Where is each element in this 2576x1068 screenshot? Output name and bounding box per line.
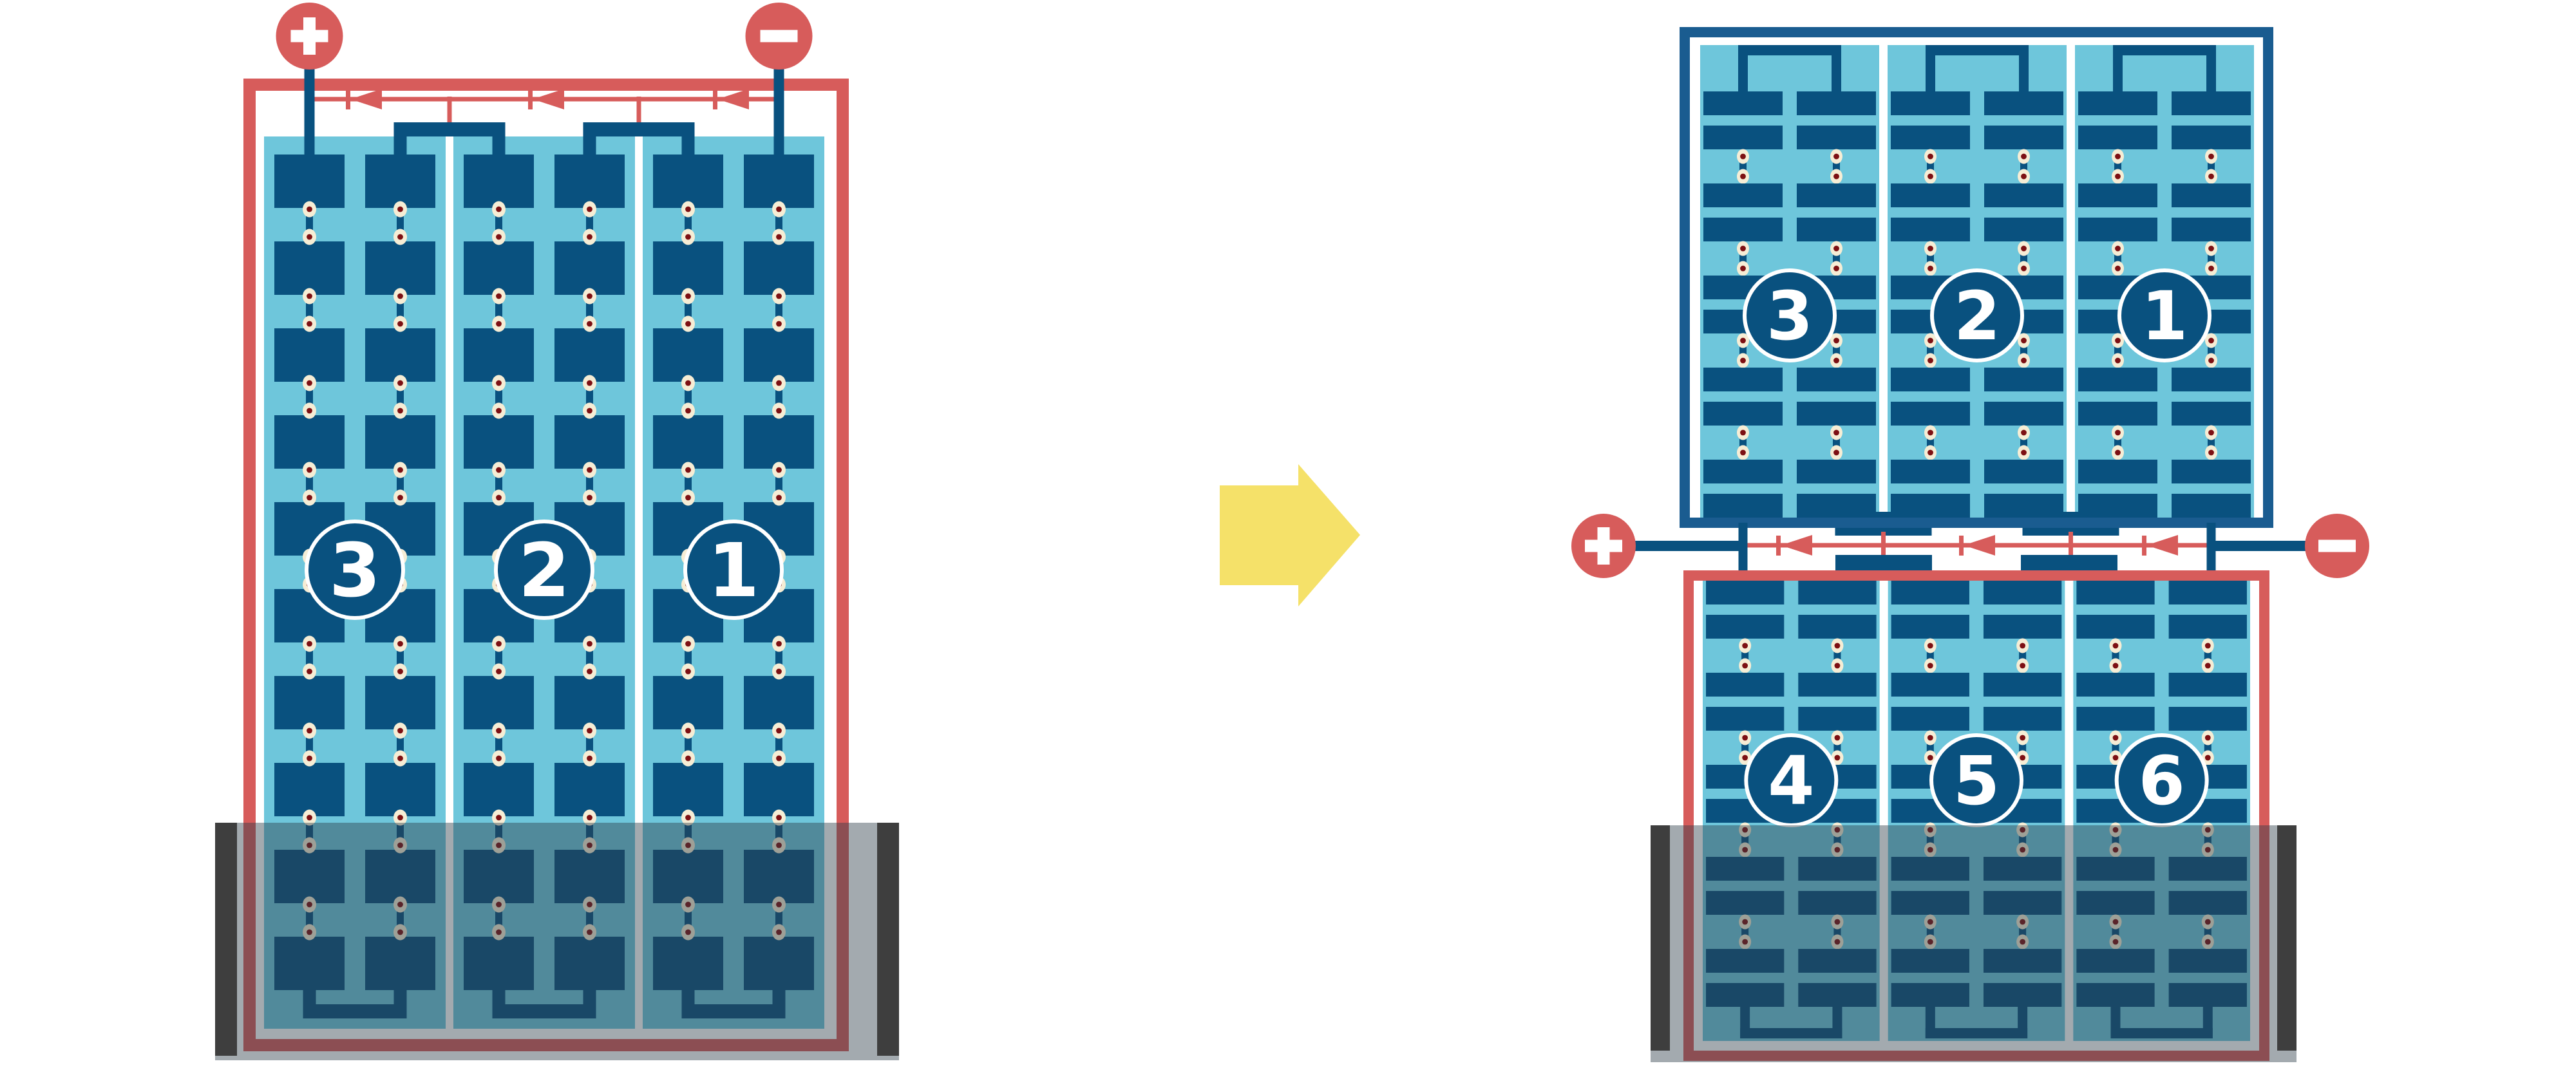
solder-dot-core [776, 207, 782, 212]
solar-cell [1984, 91, 2063, 115]
solar-cell [2172, 494, 2251, 518]
solder-dot-core [685, 467, 691, 473]
string-number-label: 4 [1768, 742, 1814, 820]
solder-dot-core [685, 728, 691, 734]
string-number-badge: 3 [1745, 270, 1835, 361]
solder-dot-core [496, 495, 502, 501]
solar-cell [1706, 707, 1784, 731]
solar-cell [744, 155, 814, 208]
bridge-leg [493, 122, 506, 155]
solder-dot-core [2115, 358, 2121, 364]
solder-dot-core [1833, 430, 1839, 436]
solder-dot-core [397, 207, 403, 212]
u-leg [2206, 55, 2216, 91]
string-number-badge: 1 [685, 521, 782, 618]
solar-cell [653, 676, 723, 729]
solar-cell [2172, 368, 2251, 391]
string-number-label: 2 [1954, 277, 2000, 355]
solder-dot-core [2205, 735, 2211, 741]
solder-dot-core [2205, 663, 2211, 669]
shade-overlay [215, 823, 899, 1060]
solder-dot-core [1927, 358, 1933, 364]
solder-dot-core [1740, 430, 1746, 436]
solder-dot-core [776, 756, 782, 762]
solder-dot-core [397, 669, 403, 675]
solar-cell [1797, 218, 1876, 241]
solder-dot-core [685, 495, 691, 501]
solder-dot-core [307, 408, 312, 414]
solar-cell [274, 155, 345, 208]
solar-cell [365, 241, 435, 295]
solder-dot-core [2115, 246, 2121, 252]
solar-cell [365, 415, 435, 469]
solder-dot-core [1927, 246, 1933, 252]
solder-dot-core [2021, 450, 2027, 456]
bridge-leg [583, 122, 596, 155]
solar-cell [1984, 581, 2061, 604]
bypass-diode-icon [1959, 535, 1995, 556]
solder-dot-core [397, 294, 403, 299]
solder-dot-core [2020, 735, 2025, 741]
solar-cell [1798, 581, 1876, 604]
solder-dot-core [2113, 643, 2119, 649]
solar-cell [1984, 402, 2063, 426]
shade-edge-bar [215, 823, 237, 1056]
bridge-bar [394, 122, 506, 136]
solar-cell [554, 676, 625, 729]
solar-cell [1891, 460, 1970, 483]
solar-cell [2169, 581, 2247, 604]
diode-cathode-bar [1959, 536, 1964, 556]
solar-cell [1984, 368, 2063, 391]
solar-cell [365, 155, 435, 208]
solder-dot-core [397, 756, 403, 762]
solar-cell [365, 763, 435, 816]
solar-cell [1797, 368, 1876, 391]
solar-cell [464, 155, 534, 208]
solar-cell [2076, 673, 2154, 697]
solar-cell [1891, 126, 1970, 149]
solder-dot-core [1742, 643, 1748, 649]
string-number-badge: 2 [496, 521, 592, 618]
solar-cell [1984, 673, 2061, 697]
solder-dot-core [587, 380, 592, 386]
diode-triangle [1964, 535, 1995, 556]
u-leg [1832, 55, 1841, 91]
solar-cell [2172, 126, 2251, 149]
solar-cell [1703, 183, 1783, 207]
diode-cathode-bar [2142, 536, 2146, 556]
string-separator [1879, 45, 1888, 518]
positive-terminal-icon [276, 3, 343, 70]
solder-dot-core [587, 728, 592, 734]
string-number-badge: 1 [2119, 270, 2210, 361]
solder-dot-core [776, 467, 782, 473]
solar-cell [653, 763, 723, 816]
string-number-label: 5 [1953, 742, 2000, 820]
bypass-diode-icon [528, 89, 564, 109]
solder-dot-core [1833, 154, 1839, 160]
solar-cell [554, 328, 625, 382]
solder-dot-core [1835, 735, 1841, 741]
solar-cell [1891, 673, 1969, 697]
solar-cell [464, 328, 534, 382]
solder-dot-core [307, 495, 312, 501]
diode-bus [310, 89, 779, 136]
solder-dot-core [2020, 643, 2025, 649]
solder-dot-core [1740, 246, 1746, 252]
solar-cell [2078, 368, 2157, 391]
solar-cell [1703, 368, 1783, 391]
solder-dot-core [1927, 663, 1933, 669]
junction-tick [2069, 532, 2073, 559]
solar-cell [1984, 615, 2061, 639]
u-bar [1926, 45, 2029, 55]
diode-cathode-bar [1776, 536, 1781, 556]
solder-dot-core [1835, 755, 1841, 761]
solder-dot-core [397, 641, 403, 647]
solder-dot-core [587, 207, 592, 212]
solder-dot-core [1927, 174, 1933, 180]
solar-cell [1891, 581, 1969, 604]
solar-cell [1703, 126, 1783, 149]
solder-dot-core [496, 815, 502, 821]
solder-dot-core [685, 294, 691, 299]
diode-triangle [717, 89, 749, 109]
string-number-label: 1 [2141, 277, 2188, 355]
solar-cell [1798, 673, 1876, 697]
solder-dot-core [397, 408, 403, 414]
solder-dot-core [307, 380, 312, 386]
solder-dot-core [2208, 246, 2214, 252]
solar-cell [2172, 218, 2251, 241]
solder-dot-core [2021, 246, 2027, 252]
solder-dot-core [307, 294, 312, 299]
solar-cell [1984, 218, 2063, 241]
negative-terminal-icon [2305, 514, 2369, 578]
right-stack: 321456 [1571, 32, 2369, 1062]
diode-bus [1747, 532, 2207, 559]
solar-cell [1891, 218, 1970, 241]
solder-dot-core [587, 467, 592, 473]
solar-cell [2172, 91, 2251, 115]
solder-dot-core [776, 321, 782, 327]
solar-cell [554, 155, 625, 208]
solar-cell [1984, 707, 2061, 731]
solder-dot-core [1740, 154, 1746, 160]
solar-cell [1798, 707, 1876, 731]
solder-dot-core [397, 728, 403, 734]
u-leg [1926, 55, 1935, 91]
solar-cell [744, 241, 814, 295]
solder-dot-core [2208, 358, 2214, 364]
solar-cell [1703, 460, 1783, 483]
solar-cell [1703, 91, 1783, 115]
solder-dot-core [2205, 643, 2211, 649]
solder-dot-core [496, 641, 502, 647]
terminal-wire [1632, 541, 1743, 551]
solder-dot-core [776, 234, 782, 240]
solder-dot-core [1742, 755, 1748, 761]
solar-cell [1706, 673, 1784, 697]
solder-dot-core [1927, 450, 1933, 456]
solder-dot-core [2208, 266, 2214, 272]
solder-dot-core [1740, 450, 1746, 456]
solder-dot-core [2113, 663, 2119, 669]
solder-dot-core [2020, 663, 2025, 669]
solder-dot-core [1927, 338, 1933, 344]
diode-triangle [1781, 535, 1812, 556]
solder-dot-core [685, 641, 691, 647]
solder-dot-core [587, 815, 592, 821]
solder-dot-core [397, 815, 403, 821]
solder-dot-core [776, 728, 782, 734]
solar-cell [1703, 402, 1783, 426]
solder-dot-core [776, 408, 782, 414]
solar-cell [1984, 183, 2063, 207]
solar-cell [744, 763, 814, 816]
solder-dot-core [307, 207, 312, 212]
solar-cell [653, 155, 723, 208]
solder-dot-core [496, 294, 502, 299]
solder-dot-core [397, 495, 403, 501]
solder-dot-core [397, 467, 403, 473]
solar-cell [464, 415, 534, 469]
solar-cell [2078, 183, 2157, 207]
solar-cell [554, 241, 625, 295]
solder-dot-core [1833, 338, 1839, 344]
solar-cell [1797, 402, 1876, 426]
transform-arrow-icon [1220, 464, 1360, 606]
solder-dot-core [685, 321, 691, 327]
solder-dot-core [2208, 338, 2214, 344]
solder-dot-core [1927, 266, 1933, 272]
solder-dot-core [1740, 174, 1746, 180]
solder-dot-core [1742, 735, 1748, 741]
solder-dot-core [496, 728, 502, 734]
solar-cell [1797, 183, 1876, 207]
solder-dot-core [1740, 358, 1746, 364]
string-number-label: 1 [708, 528, 759, 614]
terminal-wire [774, 63, 784, 155]
solder-dot-core [307, 728, 312, 734]
solder-dot-core [496, 321, 502, 327]
solar-cell [2172, 183, 2251, 207]
plus-glyph-v [1598, 527, 1610, 565]
solder-dot-core [2115, 430, 2121, 436]
solder-dot-core [776, 669, 782, 675]
solder-dot-core [2115, 266, 2121, 272]
solar-bypass-diode-diagram: 321321456 [0, 0, 2576, 1068]
solder-dot-core [587, 408, 592, 414]
solar-cell [744, 415, 814, 469]
solar-cell [2076, 707, 2154, 731]
solder-dot-core [776, 294, 782, 299]
solder-dot-core [307, 815, 312, 821]
string-number-label: 2 [518, 528, 570, 614]
solar-cell [1703, 218, 1783, 241]
solder-dot-core [397, 321, 403, 327]
solder-dot-core [1833, 450, 1839, 456]
solder-dot-core [397, 380, 403, 386]
solar-cell [274, 415, 345, 469]
diode-cathode-bar [713, 89, 717, 109]
solar-cell [1798, 615, 1876, 639]
diode-triangle [2146, 535, 2178, 556]
solar-cell [1703, 494, 1783, 518]
solder-dot-core [1740, 338, 1746, 344]
solar-cell [365, 328, 435, 382]
solder-dot-core [685, 815, 691, 821]
minus-glyph [2318, 540, 2356, 552]
solder-dot-core [496, 207, 502, 212]
solder-dot-core [307, 641, 312, 647]
bypass-diode-icon [1776, 535, 1812, 556]
solder-dot-core [685, 207, 691, 212]
shade-region [1651, 825, 2297, 1062]
solder-dot-core [1927, 643, 1933, 649]
shade-edge-bar [1651, 825, 1670, 1051]
solar-cell [554, 763, 625, 816]
solder-dot-core [2021, 430, 2027, 436]
solder-dot-core [1927, 430, 1933, 436]
diagram-canvas: 321321456 [0, 0, 2576, 1068]
solar-cell [274, 763, 345, 816]
string-number-label: 3 [1766, 277, 1813, 355]
solder-dot-core [2205, 755, 2211, 761]
solder-dot-core [2208, 450, 2214, 456]
solder-dot-core [685, 756, 691, 762]
solder-dot-core [587, 234, 592, 240]
bridge-leg [682, 122, 695, 155]
solder-dot-core [776, 815, 782, 821]
solder-dot-core [496, 669, 502, 675]
solder-dot-core [1835, 643, 1841, 649]
solar-cell [2169, 707, 2247, 731]
solar-cell [744, 676, 814, 729]
solder-dot-core [2208, 430, 2214, 436]
solder-dot-core [776, 641, 782, 647]
solder-dot-core [587, 669, 592, 675]
solar-cell [2169, 673, 2247, 697]
solder-dot-core [587, 321, 592, 327]
solder-dot-core [587, 294, 592, 299]
solar-cell [464, 763, 534, 816]
solder-dot-core [496, 408, 502, 414]
solder-dot-core [2115, 338, 2121, 344]
solder-dot-core [2115, 154, 2121, 160]
solar-cell [274, 676, 345, 729]
solar-cell [464, 241, 534, 295]
string-number-label: 6 [2138, 742, 2184, 820]
solar-cell [1891, 402, 1970, 426]
diode-triangle [533, 89, 564, 109]
solar-cell [464, 676, 534, 729]
transform-arrow [1220, 464, 1360, 606]
left-module: 321 [215, 3, 899, 1060]
minus-glyph [761, 30, 798, 42]
solar-cell [2172, 402, 2251, 426]
solar-cell [2076, 615, 2154, 639]
positive-terminal-icon [1571, 514, 1636, 578]
diode-cathode-bar [528, 89, 533, 109]
solar-cell [2078, 218, 2157, 241]
u-bar [1738, 45, 1841, 55]
solder-dot-core [1833, 174, 1839, 180]
string-number-badge: 4 [1746, 735, 1836, 825]
solder-dot-core [307, 234, 312, 240]
u-leg [2019, 55, 2029, 91]
solder-dot-core [2115, 174, 2121, 180]
string-number-badge: 3 [307, 521, 403, 618]
solder-dot-core [397, 234, 403, 240]
solder-dot-core [2113, 735, 2119, 741]
string-number-badge: 6 [2117, 735, 2207, 825]
solder-dot-core [496, 234, 502, 240]
solder-dot-core [1833, 246, 1839, 252]
bypass-diode-icon [713, 89, 749, 109]
solar-cell [274, 241, 345, 295]
solder-dot-core [307, 321, 312, 327]
solar-cell [1706, 581, 1784, 604]
solder-dot-core [1927, 154, 1933, 160]
solder-dot-core [307, 467, 312, 473]
solder-dot-core [496, 467, 502, 473]
solder-dot-core [2021, 338, 2027, 344]
solder-dot-core [685, 669, 691, 675]
terminal-wire [2211, 541, 2309, 551]
solder-dot-core [1927, 755, 1933, 761]
string-separator [2067, 45, 2075, 518]
solar-cell [1891, 368, 1970, 391]
solder-dot-core [1833, 358, 1839, 364]
u-leg [1738, 55, 1748, 91]
solder-dot-core [2021, 358, 2027, 364]
solar-cell [1891, 91, 1970, 115]
solder-dot-core [776, 495, 782, 501]
solder-dot-core [2021, 154, 2027, 160]
solder-dot-core [307, 756, 312, 762]
solder-dot-core [2021, 266, 2027, 272]
string-number-badge: 2 [1932, 270, 2022, 361]
solar-cell [365, 676, 435, 729]
solder-dot-core [1927, 735, 1933, 741]
solder-dot-core [2020, 755, 2025, 761]
solder-dot-core [587, 756, 592, 762]
solder-dot-core [2208, 174, 2214, 180]
shade-edge-bar [877, 823, 899, 1056]
solar-cell [554, 415, 625, 469]
solar-cell [1984, 126, 2063, 149]
solar-cell [1797, 91, 1876, 115]
solder-dot-core [685, 380, 691, 386]
solder-dot-core [685, 234, 691, 240]
solder-dot-core [776, 380, 782, 386]
string-number-label: 3 [329, 528, 381, 614]
solar-cell [1891, 183, 1970, 207]
solder-dot-core [307, 669, 312, 675]
top-module: 321 [1685, 32, 2268, 536]
junction-tick [1881, 532, 1886, 559]
u-leg [2113, 55, 2123, 91]
solar-cell [653, 328, 723, 382]
solder-dot-core [1742, 663, 1748, 669]
diode-cathode-bar [346, 89, 350, 109]
bridge-leg [394, 122, 407, 155]
negative-terminal-icon [746, 3, 813, 70]
solar-cell [1706, 615, 1784, 639]
solar-cell [2076, 581, 2154, 604]
